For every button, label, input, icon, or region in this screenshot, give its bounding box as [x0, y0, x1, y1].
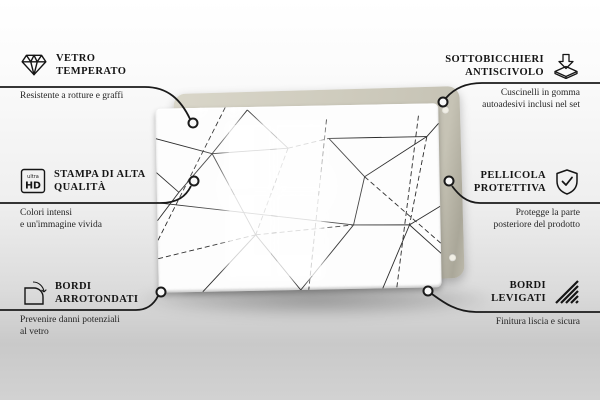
feature-desc: Finitura liscia e sicura: [496, 317, 580, 329]
hd-label: HD: [25, 181, 41, 192]
title-line: BORDI: [491, 279, 546, 292]
non-slip-pad-icon: [552, 52, 580, 79]
desc-line: Prevenire danni potenziali: [20, 315, 120, 327]
desc-line: autoadesivi inclusi nel set: [482, 100, 580, 112]
ultra-label: ultra: [27, 174, 39, 180]
desc-line: Finitura liscia e sicura: [496, 317, 580, 329]
desc-line: Cuscinelli in gomma: [482, 88, 580, 100]
desc-line: al vetro: [20, 327, 120, 339]
feature-title: SOTTOBICCHIERI ANTISCIVOLO: [445, 53, 544, 79]
callout-non-slip-coasters: SOTTOBICCHIERI ANTISCIVOLO: [445, 52, 580, 79]
title-line: PELLICOLA: [474, 169, 546, 182]
feature-desc: Resistente a rotture e graffi: [20, 91, 123, 103]
callout-tempered-glass: VETRO TEMPERATO: [20, 52, 126, 78]
anchor-dot: [157, 288, 166, 297]
diamond-icon: [20, 53, 48, 77]
shield-check-icon: [554, 168, 580, 196]
desc-line: Resistente a rotture e graffi: [20, 91, 123, 103]
infographic-stage: VETRO TEMPERATO Resistente a rotture e g…: [0, 0, 600, 400]
rounded-corner-icon: [20, 279, 47, 306]
desc-line: Protegge la parte: [493, 208, 580, 220]
callout-rounded-edges: BORDI ARROTONDATI: [20, 279, 138, 306]
title-line: LEVIGATI: [491, 292, 546, 305]
feature-desc: Cuscinelli in gomma autoadesivi inclusi …: [482, 88, 580, 111]
polished-edge-icon: [554, 279, 580, 305]
feature-desc: Protegge la parte posteriore del prodott…: [493, 208, 580, 231]
title-line: SOTTOBICCHIERI: [445, 53, 544, 66]
title-line: STAMPA DI ALTA: [54, 168, 146, 181]
feature-title: PELLICOLA PROTETTIVA: [474, 169, 546, 195]
title-line: VETRO: [56, 52, 126, 65]
desc-line: e un'immagine vivida: [20, 220, 102, 232]
desc-line: Colori intensi: [20, 208, 102, 220]
title-line: BORDI: [55, 280, 138, 293]
feature-title: VETRO TEMPERATO: [56, 52, 126, 78]
ultra-hd-icon: ultra HD: [20, 168, 46, 194]
callout-polished-edges: BORDI LEVIGATI: [491, 279, 580, 305]
title-line: PROTETTIVA: [474, 182, 546, 195]
anchor-dot: [424, 287, 433, 296]
title-line: TEMPERATO: [56, 65, 126, 78]
anchor-dot: [189, 119, 198, 128]
title-line: QUALITÀ: [54, 181, 146, 194]
feature-desc: Prevenire danni potenziali al vetro: [20, 315, 120, 338]
anchor-dot: [439, 98, 448, 107]
feature-title: BORDI ARROTONDATI: [55, 280, 138, 306]
feature-title: BORDI LEVIGATI: [491, 279, 546, 305]
feature-title: STAMPA DI ALTA QUALITÀ: [54, 168, 146, 194]
title-line: ANTISCIVOLO: [445, 66, 544, 79]
callout-print-quality: ultra HD STAMPA DI ALTA QUALITÀ: [20, 168, 146, 194]
title-line: ARROTONDATI: [55, 293, 138, 306]
anchor-dot: [445, 177, 454, 186]
anchor-dot: [190, 177, 199, 186]
feature-desc: Colori intensi e un'immagine vivida: [20, 208, 102, 231]
callout-protective-film: PELLICOLA PROTETTIVA: [474, 168, 580, 196]
desc-line: posteriore del prodotto: [493, 220, 580, 232]
